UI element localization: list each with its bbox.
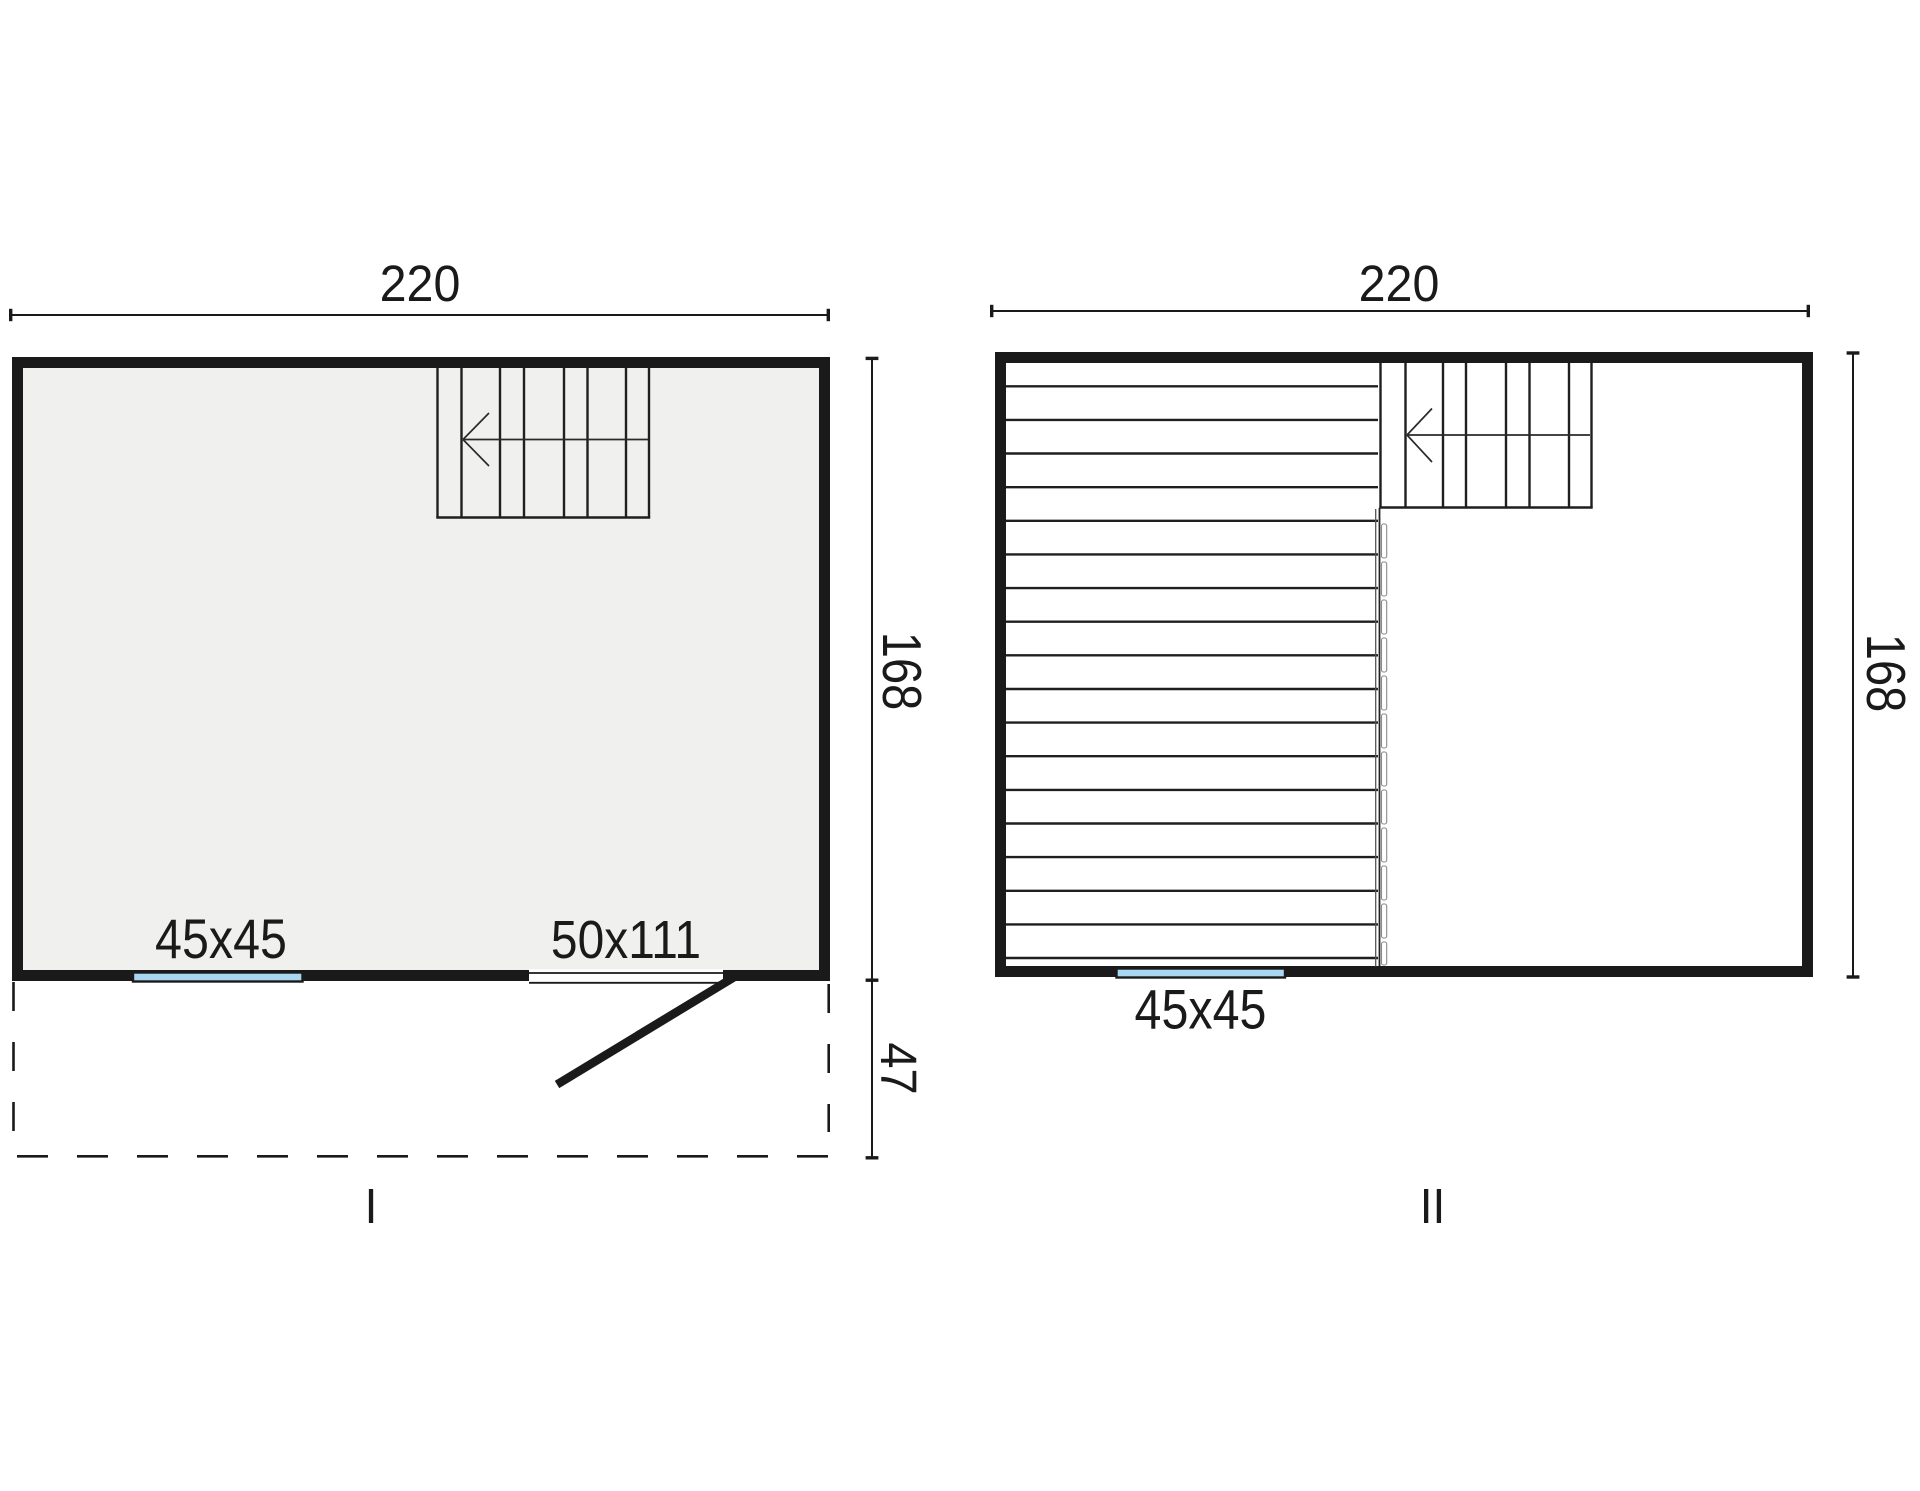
svg-text:50x111: 50x111	[551, 910, 701, 970]
svg-text:220: 220	[380, 255, 461, 312]
svg-text:45x45: 45x45	[155, 909, 287, 971]
svg-text:47: 47	[870, 1042, 926, 1094]
svg-text:I: I	[365, 1180, 378, 1235]
svg-text:220: 220	[1359, 255, 1440, 312]
svg-text:45x45: 45x45	[1135, 979, 1267, 1041]
svg-text:II: II	[1420, 1180, 1446, 1235]
svg-text:168: 168	[871, 632, 932, 710]
svg-text:168: 168	[1855, 634, 1916, 712]
